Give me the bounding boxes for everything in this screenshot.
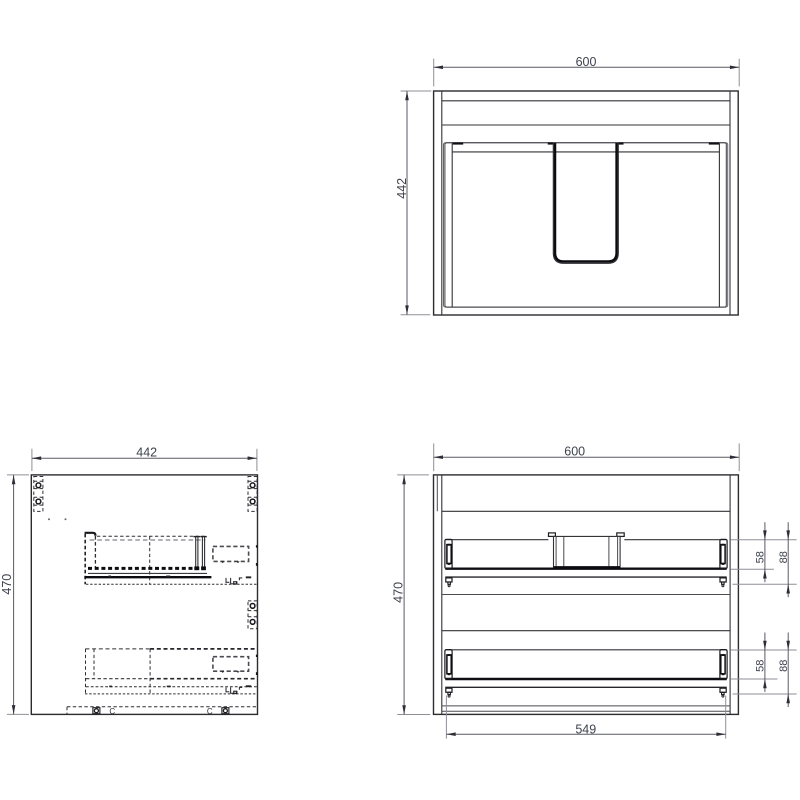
svg-text:88: 88 [778, 551, 790, 563]
svg-text:549: 549 [575, 722, 596, 736]
svg-text:442: 442 [395, 178, 409, 199]
svg-text:470: 470 [0, 574, 14, 595]
svg-text:58: 58 [754, 660, 766, 672]
svg-text:58: 58 [754, 551, 766, 563]
svg-text:600: 600 [564, 444, 585, 458]
svg-text:470: 470 [392, 582, 406, 603]
svg-text:600: 600 [576, 55, 597, 69]
svg-text:88: 88 [778, 660, 790, 672]
svg-text:442: 442 [136, 445, 157, 459]
svg-text:C: C [109, 707, 115, 716]
svg-text:C: C [207, 707, 213, 716]
